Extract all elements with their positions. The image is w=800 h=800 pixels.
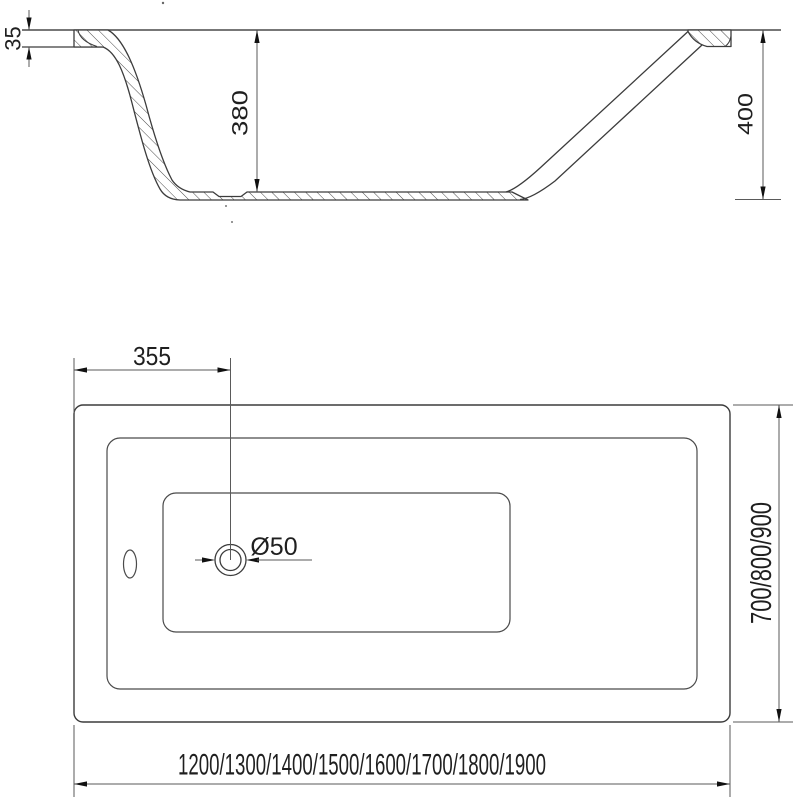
dim-label-lengths: 1200/1300/1400/1500/1600/1700/1800/1900 bbox=[178, 749, 546, 782]
dim-label-35: 35 bbox=[1, 26, 26, 50]
arrowhead-up bbox=[760, 30, 765, 43]
arrowhead-left bbox=[74, 781, 87, 786]
dim-rim-thickness: 35 bbox=[1, 10, 32, 67]
dim-label-drain-diameter: Ø50 bbox=[250, 533, 297, 561]
section-right-rim bbox=[688, 30, 731, 47]
dim-length-options: 1200/1300/1400/1500/1600/1700/1800/1900 bbox=[74, 725, 730, 797]
section-left-wall-and-floor bbox=[74, 30, 528, 200]
dim-width-options: 700/800/900 bbox=[733, 405, 793, 722]
centerline-mark-under-drain2 bbox=[231, 221, 233, 223]
dim-label-widths: 700/800/900 bbox=[746, 502, 778, 624]
bathtub-drawing-canvas: 35 380 400 bbox=[0, 0, 800, 800]
plan-outer-rect bbox=[74, 405, 730, 722]
technical-drawing-page: 35 380 400 bbox=[0, 0, 800, 800]
section-view: 35 380 400 bbox=[1, 2, 782, 223]
centerline-mark-under-drain bbox=[225, 205, 227, 207]
dim-inner-depth: 380 bbox=[228, 30, 260, 192]
arrowhead-down bbox=[776, 709, 781, 722]
arrowhead-up bbox=[776, 405, 781, 418]
arrowhead-right bbox=[218, 367, 231, 372]
arrowhead-right bbox=[202, 557, 215, 562]
plan-rim-rect bbox=[107, 438, 697, 689]
centerline-mark-top bbox=[162, 2, 164, 4]
dim-drain-offset: 355 bbox=[74, 341, 231, 560]
backrest-outer-line bbox=[520, 45, 702, 200]
arrowhead-left bbox=[74, 367, 87, 372]
plan-view: 355 Ø50 700/800/900 1200/1300/1400/1 bbox=[74, 341, 793, 797]
arrowhead-right bbox=[717, 781, 730, 786]
overflow-hole bbox=[124, 550, 137, 578]
dim-drain-diameter: Ø50 bbox=[195, 533, 312, 563]
arrowhead-up bbox=[254, 30, 259, 43]
arrowhead-down bbox=[254, 179, 259, 192]
dim-label-400: 400 bbox=[735, 93, 758, 135]
dim-overall-height: 400 bbox=[735, 30, 782, 200]
dim-label-380: 380 bbox=[228, 90, 253, 136]
arrowhead-up bbox=[26, 47, 31, 60]
arrowhead-down bbox=[760, 187, 765, 200]
dim-label-355: 355 bbox=[133, 341, 171, 371]
backrest-inner-line bbox=[506, 32, 688, 193]
arrowhead-down bbox=[26, 18, 31, 31]
